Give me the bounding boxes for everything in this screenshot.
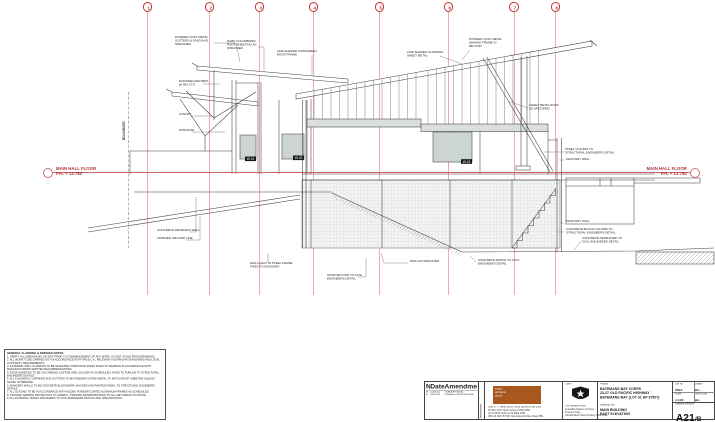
architect-logo-line: architects	[495, 391, 537, 394]
floor-level-label-left: MAIN HALL FLOORFFL + 13.780	[56, 167, 96, 177]
annotation-label: EXPOSED RAFTERS @ 900 CTS	[179, 80, 208, 87]
architect-panel: studioarchitectspty ltd Suite 2, 77 Berr…	[485, 382, 563, 419]
note-line: 6. MASONRY WALLS TO BE CONCRETE BLOCKWOR…	[7, 384, 164, 390]
revision-row: A03.05.02ISSUED FOR APPROVAL	[426, 393, 479, 396]
sheet-revision: /B	[695, 416, 702, 422]
annotation-label: CONCRETE KERB RAMP TO CIVIL ENGINEERS DE…	[582, 237, 622, 244]
annotation-label: STAIR BEYOND TO CIVIL ENGINEERS DETAIL	[327, 274, 362, 281]
note-line: 7. ALL GLAZING TO BE IN ACCORDANCE WITH …	[7, 390, 164, 393]
annotation-label: LINE SHADED SUNSCREEN ROOF FRAME	[277, 50, 317, 57]
drawing-title-line: MAIN BUILDING	[600, 408, 627, 412]
floor-level-marker-right	[690, 168, 700, 178]
annotation-label: MASONRY WALL	[566, 158, 590, 161]
annotation-label: POWDER COAT METAL GUTTERS & FASCIA AS SP…	[175, 36, 208, 46]
grid-bubble: 6	[444, 2, 454, 12]
project-label: Project	[600, 383, 608, 386]
client-panel: Client The Salvation ArmyAustralian East…	[563, 382, 598, 419]
project-line: BATEMANS BAY (LOT 31 DP 37507)	[600, 396, 659, 400]
grid-bubble: 7	[509, 2, 519, 12]
project-line: 23-27 OLD PACIFIC HIGHWAY	[600, 391, 650, 395]
annotation-label: STEEL COLUMN TO STRUCTURAL ENGINEERS DET…	[565, 148, 615, 155]
annotation-label: CONCRETE RETAINING WALL	[157, 229, 200, 232]
drawing-title-line: EAST ELEVATION	[600, 412, 630, 416]
title-block: No Date Amendment B21.06.02TENDER ISSUEA…	[424, 381, 715, 420]
general-notes-block: GENERAL CLADDING & FINISHES NOTES 1. VER…	[4, 349, 166, 420]
note-line: 3. EXTERNAL WALL CLADDING TO BE SELECTED…	[7, 365, 164, 371]
annotation-label: CONCRETE APRON TO CIVIL ENGINEERS DETAIL	[478, 259, 519, 266]
annotation-label: CANOPY	[179, 113, 192, 116]
drawing-title-label: Drawing Title	[600, 404, 615, 407]
drawing-number-label: Drawing Number	[675, 403, 694, 406]
note-line: 9. ALL EXTERNAL PAVING AND RAMPS TO CIVI…	[7, 397, 164, 400]
project-panel: Project BATEMANS BAY CORPS 23-27 OLD PAC…	[598, 382, 673, 419]
project-line: BATEMANS BAY CORPS	[600, 387, 641, 391]
annotation-label: POWDER COAT METAL AWNING FRAME IN BEYOND	[469, 38, 502, 48]
annotation-label: LINE SHADED CLADDING SHEET METAL	[407, 51, 443, 58]
architect-address-line: Suite 2, 77 Berry Street, North Sydney N…	[488, 406, 544, 409]
annotation-label: HIGH LIGHT IN STEEL FRAME FIXED TO MASON…	[250, 262, 293, 269]
window-tag-label: W-01	[247, 157, 255, 161]
info-panel: Job No9913DrawnDCScale1:100Sheet SizeA1 …	[673, 382, 715, 419]
grid-bubble: 4	[309, 2, 319, 12]
note-line: 5. ALL FLASHINGS, CAPPINGS AND GUTTERS T…	[7, 378, 164, 384]
notes-title: GENERAL CLADDING & FINISHES NOTES	[7, 352, 164, 355]
architect-address-line: ABN 23 003 257 561 Nominated Architect R…	[488, 415, 544, 418]
note-line: 4. ROOF SHEETING TO BE COLORBOND CUSTOM …	[7, 371, 164, 377]
annotation-label: DARK COLORBOND ROOF SHEETING AS SPECIFIE…	[227, 40, 257, 50]
annotation-label: SHEET METAL ROOF AS SPECIFIED	[529, 104, 559, 111]
annotation-label: MASONRY WALL	[566, 220, 590, 223]
window-tag-label: W-03	[463, 160, 471, 164]
revision-table: No Date Amendment B21.06.02TENDER ISSUEA…	[425, 382, 479, 419]
grid-bubble: 1	[143, 2, 153, 12]
note-line: 2. ALL WORK TO BE CARRIED OUT IN ACCORDA…	[7, 358, 164, 364]
annotation-label: SUNHOOD	[179, 129, 194, 132]
grid-bubble: 5	[375, 2, 385, 12]
salvation-army-shield-icon	[571, 386, 590, 403]
floor-level-marker-left	[43, 168, 53, 178]
grid-bubble: 3	[255, 2, 265, 12]
boundary-label: BOUNDARY	[123, 121, 126, 140]
sheet-number: A21	[676, 413, 695, 422]
grid-bubble: 8	[551, 2, 561, 12]
grid-bubble: 2	[205, 2, 215, 12]
window-tag-label: W-02	[295, 156, 303, 160]
annotation-label: PATH AS SPECIFIED	[410, 260, 439, 263]
architect-logo: studioarchitectspty ltd	[493, 386, 541, 404]
architect-logo-line: pty ltd	[495, 394, 537, 397]
annotation-label: FINISHED GROUND LINE	[157, 237, 193, 240]
annotation-label: CONCRETE BLOCK COLUMN TO STRUCTURAL ENGI…	[566, 228, 616, 235]
drawing-sheet: W-01 W-02 W-03	[0, 0, 715, 422]
floor-level-label-right: MAIN HALL FLOORFFL + 13.780	[647, 167, 687, 177]
